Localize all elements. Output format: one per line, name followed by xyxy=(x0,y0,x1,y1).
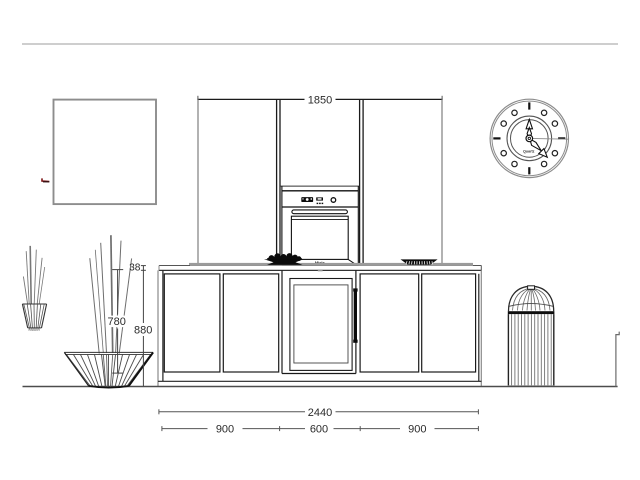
svg-text:2440: 2440 xyxy=(308,407,332,419)
svg-text:900: 900 xyxy=(408,424,426,436)
svg-text:900: 900 xyxy=(216,424,234,436)
svg-text:780: 780 xyxy=(108,316,126,328)
svg-text:600: 600 xyxy=(310,424,328,436)
svg-text:38: 38 xyxy=(129,263,141,274)
svg-text:880: 880 xyxy=(134,325,152,337)
svg-text:Quartz: Quartz xyxy=(523,150,535,154)
svg-text:1850: 1850 xyxy=(308,94,332,106)
